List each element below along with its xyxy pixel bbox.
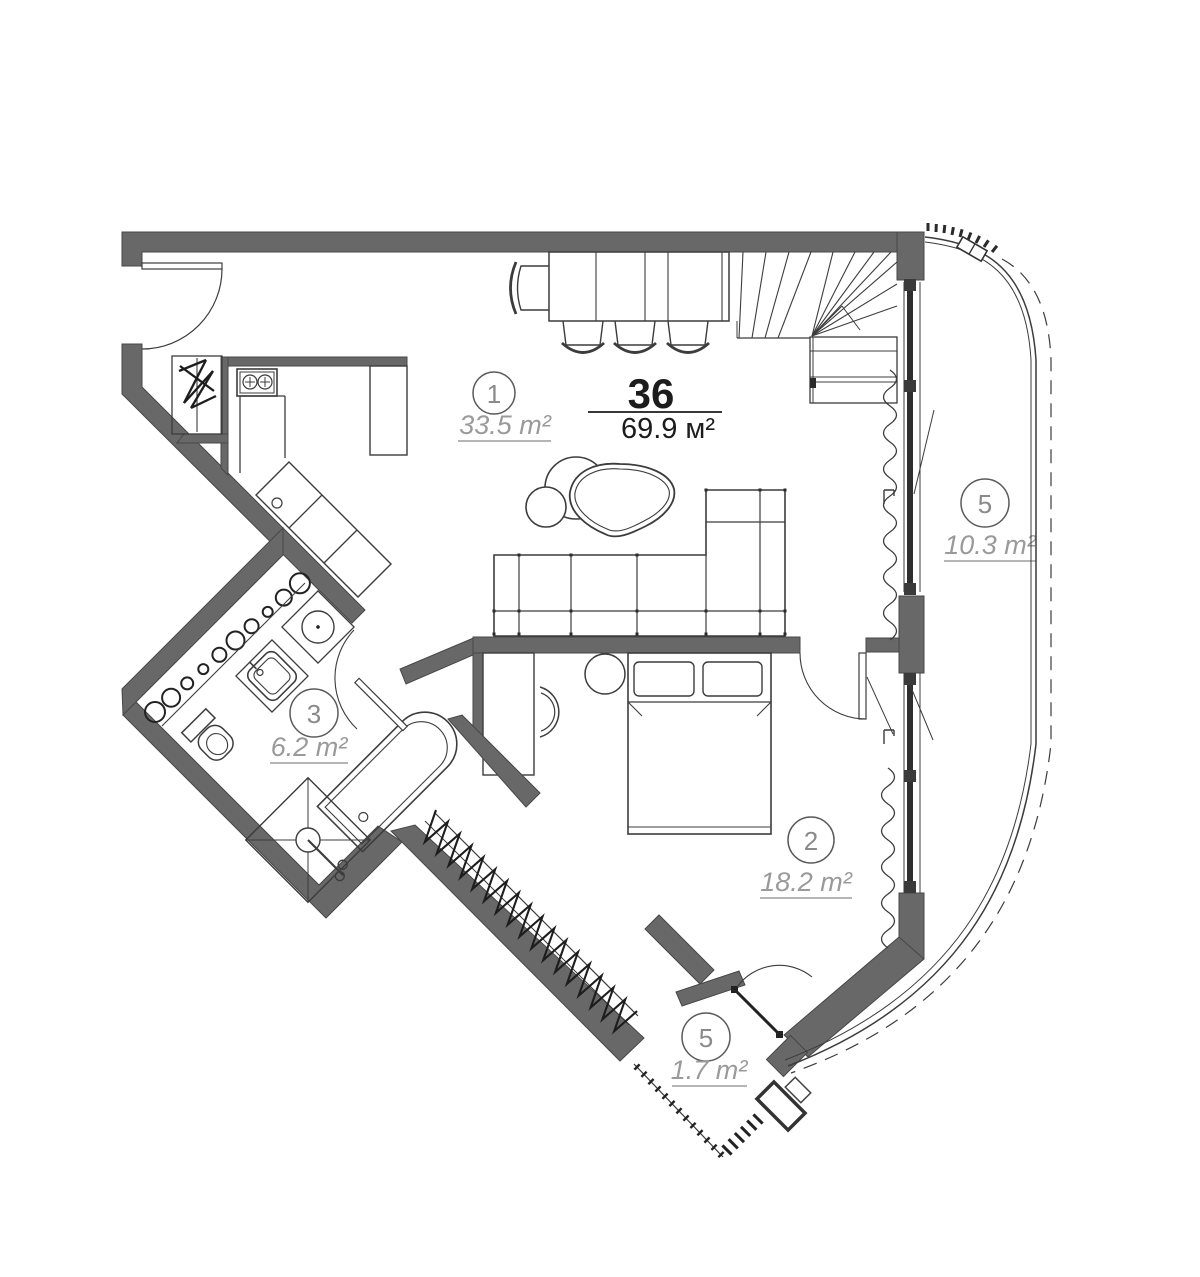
svg-text:36: 36 <box>628 370 675 417</box>
svg-text:18.2 m²: 18.2 m² <box>760 867 853 897</box>
svg-text:1: 1 <box>487 379 501 409</box>
svg-text:3: 3 <box>307 699 321 729</box>
svg-text:6.2 m²: 6.2 m² <box>271 732 349 762</box>
svg-text:5: 5 <box>978 489 992 519</box>
svg-text:5: 5 <box>699 1023 713 1053</box>
svg-text:69.9 м²: 69.9 м² <box>621 413 715 445</box>
svg-text:10.3 m²: 10.3 m² <box>944 530 1037 560</box>
svg-text:1.7 m²: 1.7 m² <box>671 1055 749 1085</box>
svg-text:2: 2 <box>804 826 818 856</box>
svg-text:33.5 m²: 33.5 m² <box>459 410 552 440</box>
